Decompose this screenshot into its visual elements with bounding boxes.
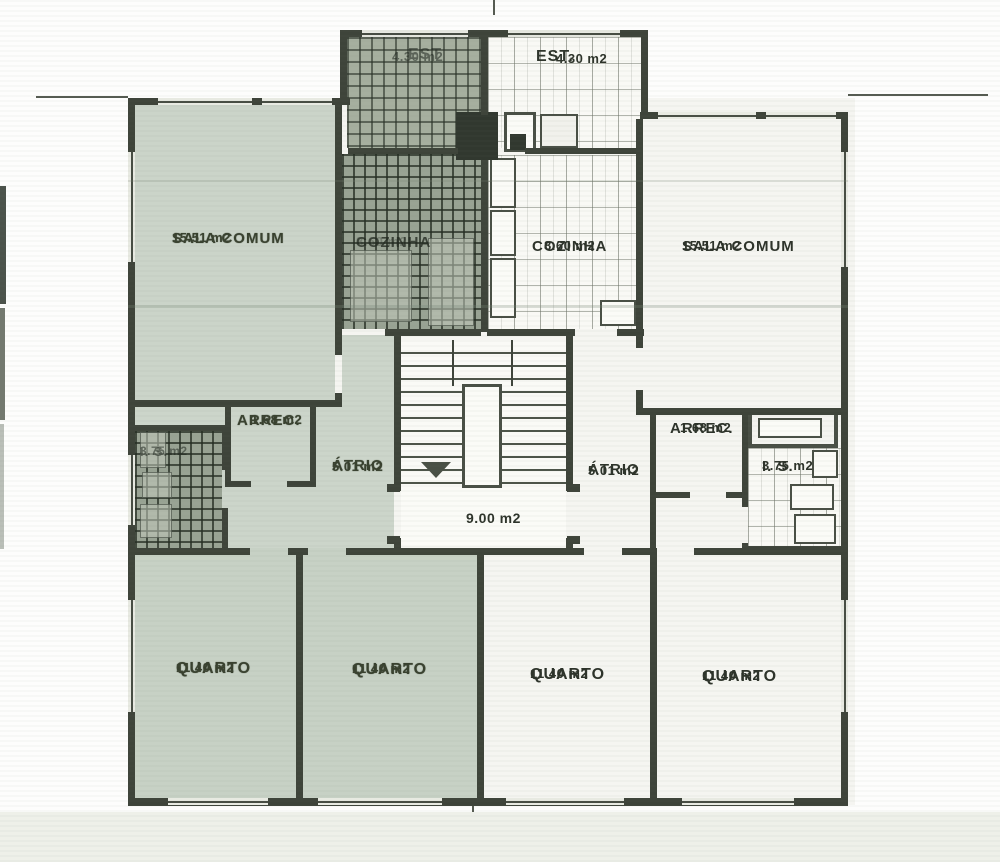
room-area: 8.60 m2 — [356, 234, 407, 249]
wall — [231, 481, 251, 487]
room-area: 3.75 m2 — [762, 458, 813, 473]
wall — [487, 329, 575, 336]
duct-block — [456, 112, 498, 160]
registration-mark-top — [493, 0, 495, 15]
room-area: 15.51 m2 — [172, 230, 231, 245]
room-area: 3.75 m2 — [140, 444, 188, 458]
scan-band — [128, 180, 848, 182]
wall — [481, 37, 488, 115]
scan-band — [128, 305, 848, 308]
window — [128, 152, 135, 262]
kitchen-counter — [600, 300, 636, 326]
wall — [348, 148, 458, 154]
closet-inner — [758, 418, 822, 438]
stair-flight-divider — [511, 340, 513, 386]
wall — [617, 329, 644, 336]
wall — [340, 30, 347, 105]
room-area: 4.30 m2 — [556, 51, 607, 66]
room-area: 11.40 m2 — [352, 661, 410, 676]
wall — [477, 548, 484, 798]
window — [168, 798, 268, 805]
wall — [656, 492, 690, 498]
window — [841, 152, 848, 267]
stair-flight-divider — [452, 340, 454, 386]
wall — [641, 30, 648, 119]
wall — [566, 333, 573, 491]
window — [506, 798, 624, 805]
left-unit-corridor-tint — [342, 335, 394, 400]
door-jamb — [387, 484, 400, 492]
wall — [310, 407, 316, 487]
room-area: 11.40 m2 — [530, 666, 588, 681]
window — [128, 600, 135, 712]
wall — [335, 103, 342, 355]
kitchen-counter — [490, 158, 516, 208]
room-area: 15.51 m2 — [682, 238, 741, 253]
room-area: 8.60 m2 — [544, 238, 595, 253]
window — [766, 112, 836, 119]
stair-core — [462, 384, 502, 488]
bathroom-fixture — [794, 514, 836, 544]
registration-mark-left — [36, 96, 128, 98]
window — [158, 98, 252, 105]
wall — [222, 425, 228, 470]
water-heater-detail — [510, 134, 526, 150]
room-area: 4.30 m2 — [392, 49, 443, 64]
registration-mark-right — [848, 94, 988, 96]
door-jamb — [387, 536, 400, 544]
door-jamb — [567, 536, 580, 544]
wall — [650, 548, 657, 798]
left-unit-sala-tint — [135, 105, 335, 400]
wall — [135, 548, 250, 555]
window — [841, 600, 848, 712]
wall — [135, 400, 342, 407]
room-area: 11.40 m2 — [702, 668, 760, 683]
scan-bottom-strip — [0, 812, 1000, 862]
wall — [287, 481, 310, 487]
wall — [135, 425, 222, 431]
bathroom-fixture — [812, 450, 838, 478]
wall — [296, 548, 303, 798]
room-area: 1.68 m2 — [251, 412, 302, 427]
window — [262, 98, 332, 105]
window — [508, 30, 620, 37]
kitchen-counter — [490, 258, 516, 318]
room-area: 1.68 m2 — [680, 420, 731, 435]
bathroom-fixture-left — [142, 472, 172, 498]
wall — [346, 548, 584, 555]
kitchen-counter — [490, 210, 516, 256]
wall — [636, 119, 643, 348]
kitchen-counter-left — [428, 238, 474, 326]
wall — [650, 415, 656, 548]
wall — [525, 148, 642, 154]
window — [658, 112, 756, 119]
scan-edge-artifact — [0, 186, 6, 304]
room-area: 9.00 m2 — [466, 510, 521, 526]
wall — [742, 415, 748, 507]
room-area: 11.40 m2 — [176, 660, 234, 675]
wall — [222, 508, 228, 548]
scan-edge-artifact — [0, 308, 5, 420]
room-area: 5.01 m2 — [588, 463, 639, 478]
wall — [394, 333, 401, 491]
wall — [726, 492, 742, 498]
bathroom-fixture-left — [140, 504, 172, 538]
scan-edge-artifact — [0, 424, 4, 549]
window — [362, 30, 468, 37]
window — [318, 798, 442, 805]
stair-direction-arrow-icon — [421, 462, 451, 478]
kitchen-counter-left — [350, 250, 412, 322]
floor-plan-scan: EST 4.30 m2 SALA COMUM 15.51 m2 COZINHA … — [0, 0, 1000, 862]
door-jamb — [567, 484, 580, 492]
room-area: 5.01 m2 — [332, 459, 383, 474]
wall — [694, 548, 841, 555]
bathroom-fixture — [790, 484, 834, 510]
est-cabinet — [540, 114, 578, 148]
wall — [636, 408, 841, 415]
window — [682, 798, 794, 805]
window — [128, 455, 135, 525]
